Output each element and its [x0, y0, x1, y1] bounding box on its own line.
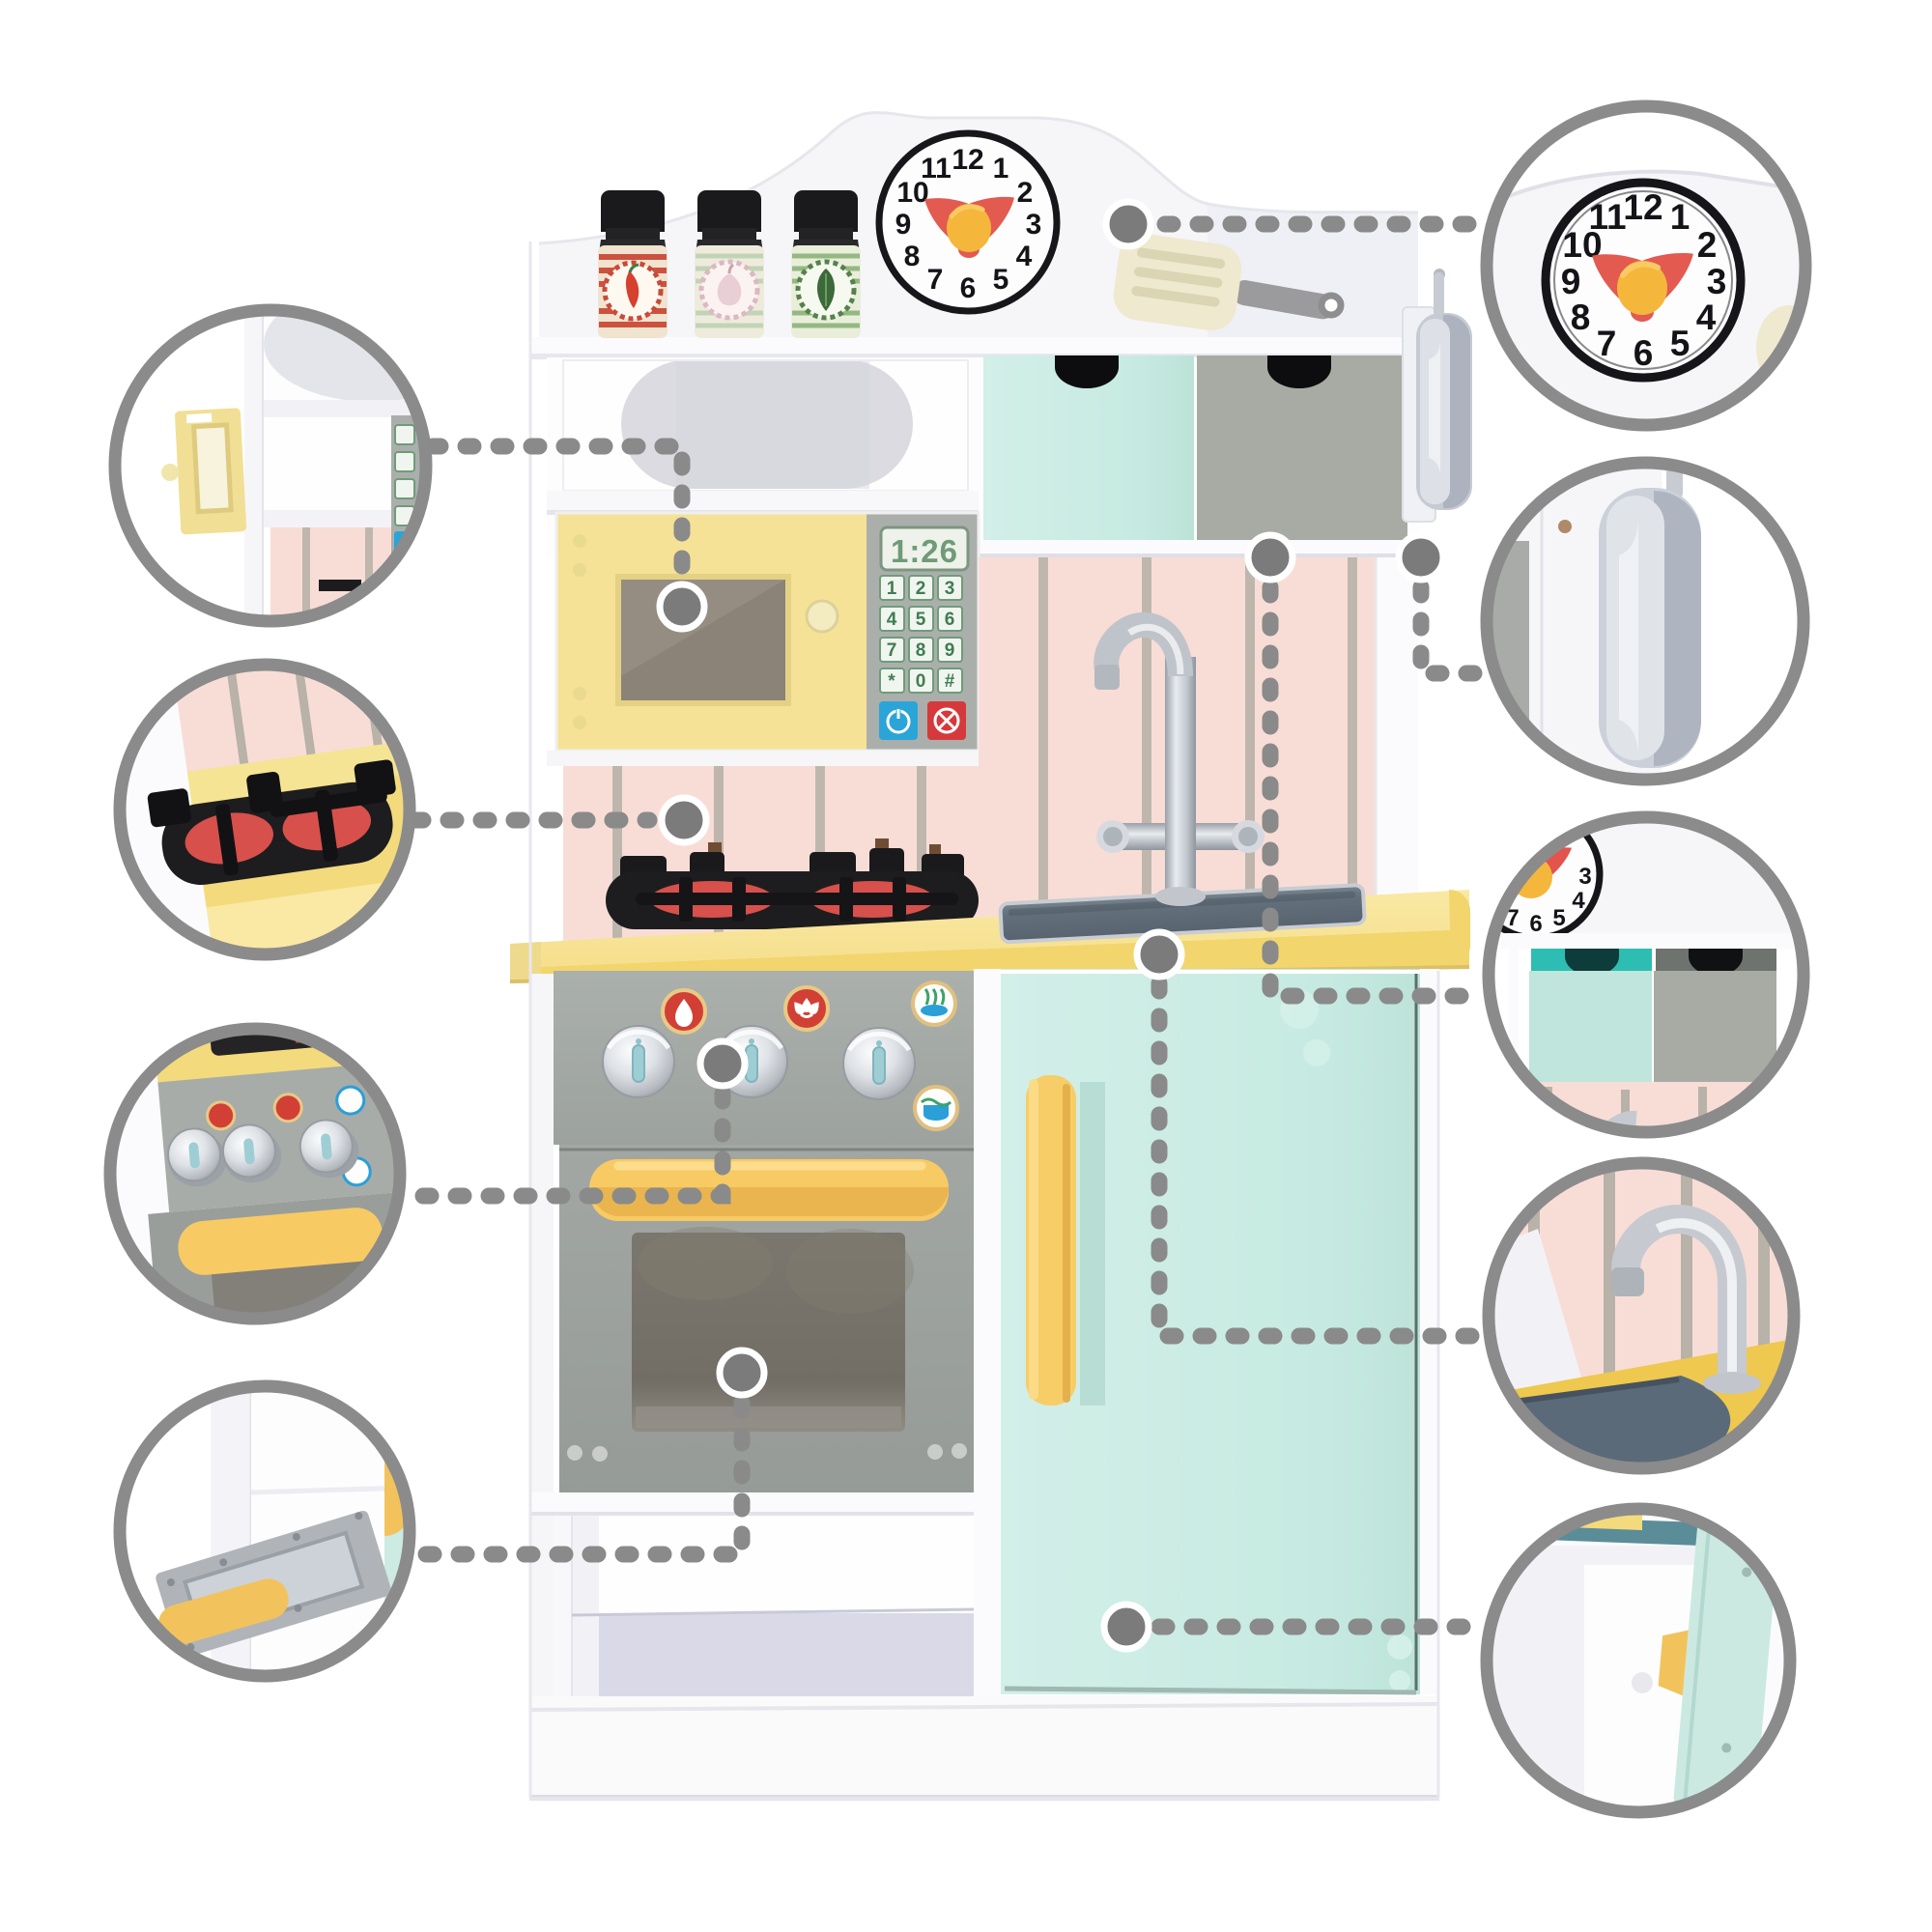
svg-text:3: 3	[1578, 864, 1591, 890]
svg-text:8: 8	[1571, 298, 1591, 337]
svg-text:4: 4	[1016, 241, 1033, 272]
svg-text:4: 4	[1572, 888, 1585, 914]
svg-text:11: 11	[1588, 197, 1626, 237]
svg-text:6: 6	[960, 272, 977, 304]
svg-text:4: 4	[887, 610, 897, 630]
svg-text:6: 6	[1634, 333, 1654, 373]
svg-text:0: 0	[916, 671, 926, 692]
svg-text:#: #	[945, 671, 955, 692]
svg-text:5: 5	[1552, 905, 1565, 931]
svg-text:7: 7	[1597, 324, 1617, 363]
svg-text:2: 2	[916, 579, 926, 599]
svg-text:7: 7	[927, 264, 944, 296]
svg-text:3: 3	[1707, 262, 1727, 301]
svg-text:8: 8	[904, 241, 921, 272]
svg-text:9: 9	[1561, 262, 1581, 301]
svg-text:11: 11	[921, 153, 952, 185]
svg-text:1: 1	[993, 153, 1009, 185]
svg-text:3: 3	[1026, 209, 1042, 241]
svg-text:7: 7	[887, 640, 897, 661]
svg-text:12: 12	[1623, 187, 1662, 227]
svg-text:3: 3	[945, 579, 955, 599]
svg-text:9: 9	[945, 640, 955, 661]
svg-text:9: 9	[895, 209, 912, 241]
svg-text:4: 4	[1696, 298, 1717, 337]
svg-text:5: 5	[993, 264, 1009, 296]
svg-text:*: *	[888, 671, 895, 692]
svg-text:5: 5	[916, 610, 926, 630]
svg-text:6: 6	[945, 610, 955, 630]
svg-text:12: 12	[952, 144, 983, 176]
svg-text:1: 1	[887, 579, 897, 599]
svg-text:1:26: 1:26	[891, 533, 958, 569]
svg-text:1: 1	[1670, 197, 1690, 237]
svg-text:6: 6	[1529, 911, 1542, 937]
svg-text:2: 2	[1697, 225, 1718, 265]
svg-text:5: 5	[1670, 324, 1690, 363]
svg-text:2: 2	[1017, 177, 1034, 209]
svg-text:8: 8	[916, 640, 926, 661]
